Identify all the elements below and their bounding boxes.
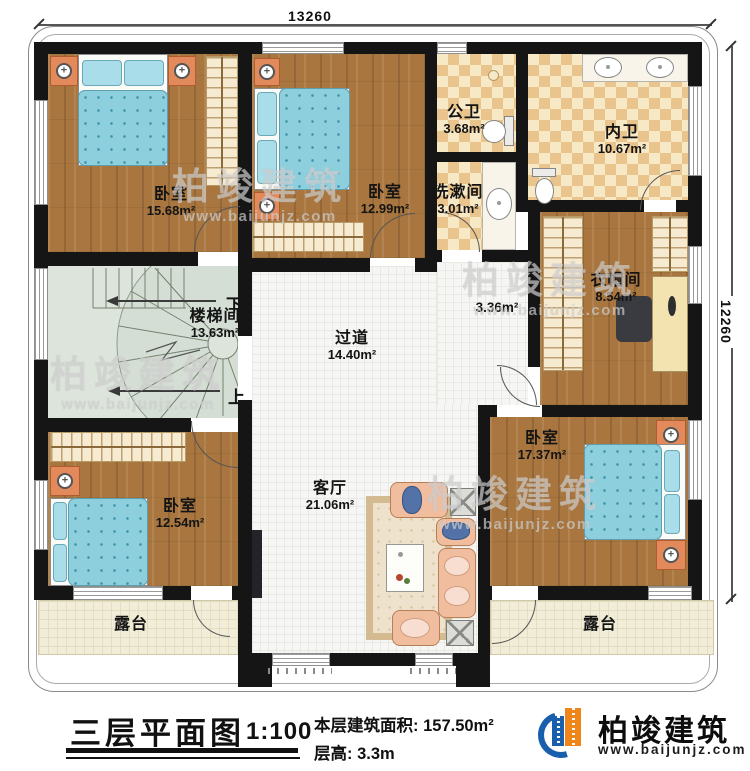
floor-area-text: 本层建筑面积: 157.50m²: [314, 712, 494, 736]
brand-logo-building-orange: [565, 708, 581, 746]
floor-height-label: 层高:: [314, 745, 353, 763]
wall-segment: [34, 418, 191, 432]
sofa-cushion: [444, 556, 470, 576]
window: [688, 246, 702, 304]
window: [34, 268, 48, 360]
lamp-icon: [663, 547, 679, 563]
wall-segment: [163, 586, 191, 600]
brand-website: www.baijunjz.com: [598, 742, 747, 757]
title-underline: [66, 748, 298, 753]
wall-pier: [238, 653, 272, 687]
pillow: [53, 502, 67, 540]
plan-scale: 1:100: [246, 718, 312, 746]
window: [262, 42, 344, 54]
window: [73, 586, 163, 600]
bed-duvet: [78, 90, 168, 166]
stair-down-label: 下: [226, 291, 243, 316]
floor-area-value: 157.50m²: [423, 717, 494, 735]
wardrobe: [543, 216, 583, 371]
window: [34, 480, 48, 550]
lamp-icon: [57, 473, 73, 489]
wall-segment: [232, 586, 252, 600]
stair-up-label: 上: [228, 383, 245, 408]
wall-segment: [478, 405, 497, 417]
dresser-item: [668, 296, 676, 316]
chair: [616, 296, 652, 342]
window: [688, 420, 702, 500]
window: [437, 42, 467, 54]
pillow: [257, 92, 277, 136]
window: [648, 586, 692, 600]
toilet: [482, 120, 506, 143]
pillow: [664, 450, 680, 492]
floor-drain: [488, 70, 499, 81]
wall-segment: [478, 586, 492, 600]
sofa-cushion: [444, 586, 470, 606]
lamp-icon: [259, 198, 275, 214]
wall-segment: [34, 42, 702, 54]
wall-segment: [238, 42, 252, 266]
lamp-icon: [259, 64, 275, 80]
wall-segment: [542, 405, 702, 417]
wall-segment: [538, 586, 648, 600]
right-dimension-value: 12260: [718, 296, 734, 348]
nightstand: [50, 466, 80, 496]
wardrobe: [652, 216, 688, 272]
bed-duvet: [279, 88, 350, 190]
pillow: [257, 140, 277, 184]
lamp-icon: [174, 63, 190, 79]
terrace-railing: [268, 668, 332, 674]
nightstand: [50, 56, 78, 86]
lamp-icon: [663, 427, 679, 443]
title-underline-thin: [66, 757, 300, 759]
stair-arrow-head: [106, 296, 118, 306]
wall-segment: [34, 586, 73, 600]
lamp-icon: [56, 63, 72, 79]
bed-duvet: [68, 498, 148, 586]
stair-direction-arrow: [118, 300, 216, 302]
wall-segment: [34, 252, 198, 266]
wall-segment: [437, 152, 516, 162]
coffee-table: [386, 544, 424, 592]
wall-segment: [528, 212, 540, 367]
wall-segment: [252, 258, 370, 272]
toilet: [532, 168, 556, 177]
floor-plan-sheet: 13260 12260: [0, 0, 750, 771]
wardrobe: [50, 432, 186, 462]
wall-segment: [238, 418, 252, 432]
pillow: [124, 60, 164, 86]
sofa-cushion: [400, 618, 430, 638]
wardrobe: [206, 56, 238, 186]
staircase-diagram: [48, 266, 238, 418]
window: [415, 653, 453, 666]
wall-pier: [456, 653, 490, 687]
floor-area-label: 本层建筑面积:: [314, 717, 419, 735]
sink: [594, 57, 622, 78]
wall-segment: [425, 42, 437, 258]
brand-logo-building-blue: [552, 716, 564, 746]
top-dimension-value: 13260: [284, 8, 336, 24]
pillow: [53, 544, 67, 582]
wall-segment: [516, 200, 644, 212]
bed-duvet: [584, 444, 662, 540]
wall-segment: [425, 250, 437, 270]
pillow: [664, 494, 680, 534]
dressing-table: [652, 276, 688, 372]
window: [34, 100, 48, 205]
terrace-railing: [410, 668, 456, 674]
person-figure: [402, 486, 422, 514]
flowers: [396, 574, 403, 581]
person-figure: [442, 522, 470, 540]
sink: [646, 57, 674, 78]
floor-height-value: 3.3m: [357, 745, 395, 763]
pillow: [82, 60, 122, 86]
wardrobe: [252, 222, 364, 252]
side-table: [450, 488, 476, 516]
floor-height-text: 层高: 3.3m: [314, 740, 395, 764]
wall-segment: [238, 432, 252, 666]
window: [272, 653, 330, 666]
table-item: [398, 552, 403, 557]
sink: [486, 188, 512, 220]
stair-arrow-head: [108, 386, 120, 396]
plan-title: 三层平面图: [70, 708, 245, 753]
window: [688, 86, 702, 176]
wall-segment: [238, 252, 252, 266]
stair-direction-arrow: [120, 390, 220, 392]
toilet: [535, 178, 554, 204]
nightstand: [656, 540, 686, 570]
side-table: [446, 620, 474, 646]
nightstand: [254, 58, 280, 86]
wall-segment: [516, 42, 528, 210]
nightstand: [254, 192, 280, 220]
wall-segment: [478, 412, 490, 666]
flowers: [404, 578, 410, 584]
tv-panel: [252, 530, 262, 598]
nightstand: [168, 56, 196, 86]
